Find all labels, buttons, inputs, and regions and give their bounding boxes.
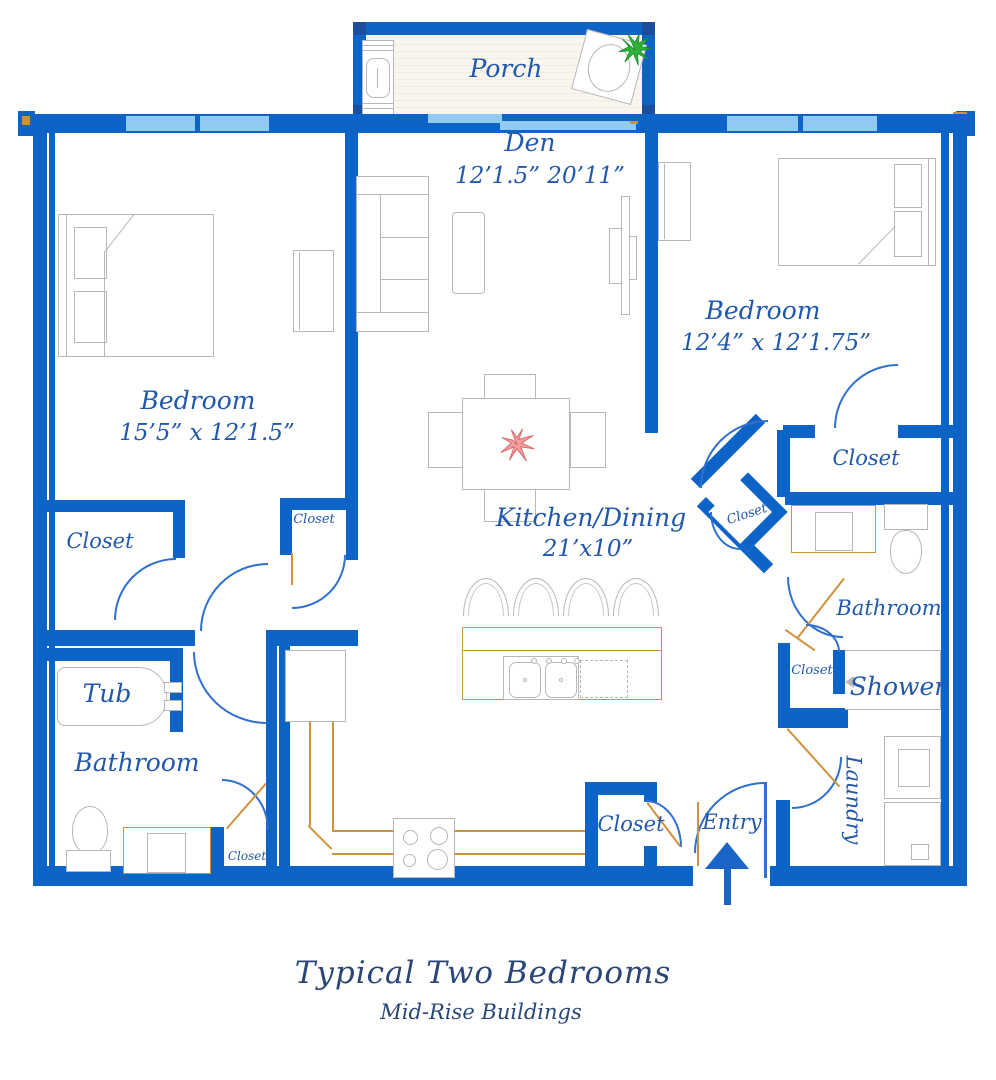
wall-closet-left-jamb [173, 500, 185, 558]
closet-right-label: Closet [832, 448, 899, 469]
door-arc-bedroom-left [200, 563, 268, 631]
exterior-wall-bottom-right [770, 866, 967, 886]
bedroom-left-label: Bedroom [141, 388, 256, 413]
porch-lounge-seam [377, 68, 378, 88]
entry-frame-line [697, 802, 699, 866]
wall-closet-entry-right-b [644, 846, 657, 866]
den-label: Den [505, 130, 556, 155]
faucet-knob [561, 658, 567, 664]
bed-left-pillow [74, 227, 107, 279]
bathroom-right-label: Bathroom [836, 598, 941, 619]
wall-tick [22, 116, 30, 125]
bed-right-pillow [894, 164, 922, 208]
kitchen-dining-dims: 21’x10” [543, 538, 634, 561]
counter-edge [332, 722, 334, 830]
counter-edge [332, 853, 585, 855]
wall-laundry-north [778, 708, 848, 728]
closet-hall-label: Closet [293, 513, 335, 526]
bed-left-headboard [66, 214, 67, 357]
bedroom-right-label: Bedroom [706, 298, 821, 323]
stove-burner [403, 830, 418, 845]
wall-closet-right-north-a [783, 425, 815, 438]
dryer-panel [911, 844, 929, 860]
wall-closet-right-north-b [898, 425, 953, 438]
wall-closet-hall-right [346, 498, 358, 560]
floor-plan: Porch [0, 0, 996, 1080]
wall-closet-entry-right-a [644, 782, 657, 802]
porch-label: Porch [470, 56, 543, 81]
vanity-right-sink [815, 512, 853, 551]
porch-lounge-line [362, 103, 394, 104]
plant-icon [616, 33, 654, 67]
counter-edge [332, 830, 585, 832]
bar-stool [463, 578, 509, 616]
sofa [356, 176, 429, 332]
bed-left-pillow [74, 291, 107, 343]
closet-entry-label: Closet [597, 814, 664, 835]
bathroom-left-label: Bathroom [74, 750, 199, 775]
faucet-knob [546, 658, 552, 664]
wall-closet-left-top [45, 500, 185, 512]
door-arc-bedroom-right [700, 420, 768, 488]
stove [393, 818, 455, 878]
tub-faucet [164, 700, 182, 711]
sink-drain [523, 678, 527, 682]
bed-right-headboard [928, 158, 929, 266]
porch-wall-top [353, 22, 655, 35]
porch-lounge-line [362, 108, 394, 109]
sliding-door [428, 114, 502, 123]
door-arc-closet-hall [292, 555, 346, 609]
porch-lounge-cushion [366, 58, 390, 98]
coffee-table [452, 212, 485, 294]
bed-left-blanket-line [104, 252, 105, 357]
bed-right-pillow [894, 211, 922, 257]
bedroom-left-dims: 15’5” x 12’1.5” [119, 422, 294, 445]
porch-lounge-line [362, 50, 394, 51]
kitchen-dining-label: Kitchen/Dining [496, 505, 686, 530]
closet-left-label: Closet [66, 531, 133, 552]
plan-title: Typical Two Bedrooms [295, 955, 672, 991]
dresser-right [658, 162, 691, 241]
washer-door [898, 749, 930, 787]
entry-arrow-head [705, 842, 749, 869]
closet-shower-label: Closet [791, 664, 833, 677]
toilet-tank [66, 850, 111, 872]
door-tick [630, 121, 638, 124]
toilet-bowl [72, 806, 108, 854]
wall-closet-right-west [777, 430, 790, 497]
wall-closet-hall-left [280, 498, 292, 555]
window [803, 116, 877, 131]
wall-bedroom-left-south-a [45, 630, 195, 646]
dishwasher [580, 660, 628, 698]
counter-edge [309, 722, 311, 826]
door-arc-bathroom-left [193, 652, 267, 724]
entry-arrow-stem [724, 869, 731, 905]
flower-centerpiece-icon [498, 426, 536, 464]
entry-label: Entry [702, 812, 761, 833]
wall-bath-kitchen-a [266, 644, 277, 866]
dresser-left-line [299, 252, 300, 330]
sofa-cushion-line [380, 279, 429, 280]
plan-subtitle: Mid-Rise Buildings [380, 1000, 581, 1024]
stove-burner [430, 827, 448, 845]
tub-label: Tub [83, 681, 132, 706]
porch-lounge-line [362, 45, 394, 46]
bedroom-right-dims: 12’4” x 12’1.75” [681, 332, 871, 355]
shower-label: Shower [850, 674, 946, 699]
dresser-right-line [664, 164, 665, 239]
sink-drain [559, 678, 563, 682]
door-arc-closet-right [834, 364, 898, 428]
closet-bl-label: Closet [228, 850, 266, 862]
island-counter-line [463, 650, 661, 651]
laundry-label: Laundry [843, 756, 864, 845]
door-arc-closet-left [114, 558, 176, 620]
wall-laundry-west [776, 800, 790, 866]
wall-bathroom-left-north [45, 648, 173, 661]
dining-chair [428, 412, 464, 468]
den-dims: 12’1.5” 20’11” [455, 165, 625, 188]
sofa-cushion-line [380, 237, 429, 238]
wall-shower-closet-jamb [833, 650, 845, 694]
window [200, 116, 269, 131]
sofa-armrest-line [356, 312, 429, 313]
tv-mount [629, 236, 637, 280]
tv-screen [609, 228, 622, 284]
counter-edge-chamfer [308, 825, 333, 850]
toilet-right-tank [884, 504, 928, 530]
dining-chair [484, 374, 536, 400]
stove-burner [403, 854, 416, 867]
sofa-armrest-line [356, 194, 429, 195]
bar-stool [513, 578, 559, 616]
porch-corner [353, 22, 366, 35]
toilet-right-bowl [890, 530, 922, 574]
sofa-back-line [380, 194, 381, 312]
refrigerator [285, 650, 346, 722]
vanity-left-sink [147, 833, 186, 873]
window [727, 116, 798, 131]
stove-burner [427, 849, 448, 870]
bar-stool [563, 578, 609, 616]
bar-stool [613, 578, 659, 616]
dining-chair [570, 412, 606, 468]
exterior-wall-right-outer [953, 114, 967, 886]
window [126, 116, 195, 131]
tub-faucet [164, 682, 182, 693]
faucet-knob [531, 658, 537, 664]
wall-den-bedroom-right [645, 133, 658, 433]
wall-closet-bl [210, 827, 224, 866]
